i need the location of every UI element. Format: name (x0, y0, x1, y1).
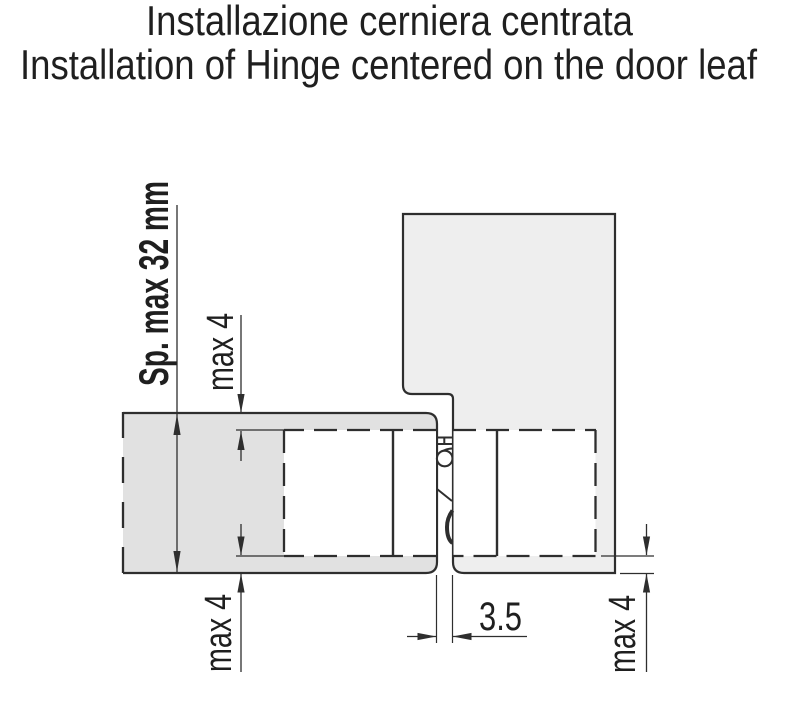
svg-text:Installation of Hinge centered: Installation of Hinge centered on the do… (20, 41, 757, 88)
svg-text:3.5: 3.5 (479, 595, 522, 639)
svg-text:max 4: max 4 (198, 594, 240, 672)
svg-text:Sp. max 32 mm: Sp. max 32 mm (130, 181, 177, 386)
svg-text:max 4: max 4 (200, 313, 242, 391)
svg-text:max 4: max 4 (602, 595, 644, 673)
svg-text:Installazione cerniera centrat: Installazione cerniera centrata (146, 0, 634, 44)
